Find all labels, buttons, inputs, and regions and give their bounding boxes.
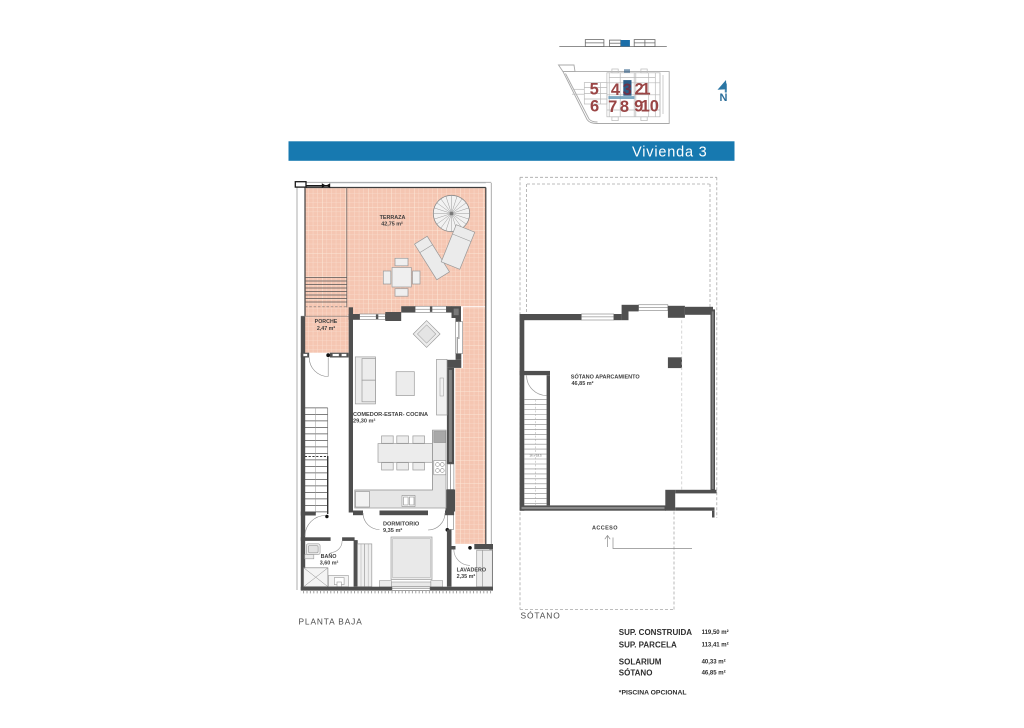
svg-text:6: 6: [590, 98, 599, 116]
svg-text:PLANTA BAJA: PLANTA BAJA: [299, 617, 363, 627]
svg-text:DORMITORIO: DORMITORIO: [383, 522, 420, 528]
svg-text:4: 4: [611, 81, 621, 99]
svg-text:2,47 m²: 2,47 m²: [317, 326, 335, 332]
svg-text:TERRAZA: TERRAZA: [380, 215, 406, 221]
svg-text:113,41 m²: 113,41 m²: [702, 642, 729, 649]
svg-text:SUP. PARCELA: SUP. PARCELA: [619, 640, 677, 649]
svg-text:5: 5: [590, 81, 599, 99]
svg-text:119,50 m²: 119,50 m²: [702, 629, 729, 636]
svg-text:PORCHE: PORCHE: [315, 319, 338, 325]
svg-text:BAÑO: BAÑO: [321, 553, 337, 560]
svg-text:3,60 m²: 3,60 m²: [320, 561, 339, 567]
svg-text:8: 8: [620, 98, 629, 116]
svg-text:SÓTANO: SÓTANO: [619, 668, 653, 677]
svg-text:SUP. CONSTRUIDA: SUP. CONSTRUIDA: [619, 628, 692, 637]
svg-text:16 x 18,5: 16 x 18,5: [529, 454, 542, 458]
svg-text:SOLARIUM: SOLARIUM: [619, 657, 662, 666]
svg-text:40,33 m²: 40,33 m²: [702, 659, 726, 666]
svg-text:29,30 m²: 29,30 m²: [353, 418, 376, 425]
svg-text:1: 1: [641, 81, 650, 99]
svg-text:10: 10: [641, 98, 659, 116]
svg-text:ACCESO: ACCESO: [592, 526, 618, 532]
svg-text:LAVADERO: LAVADERO: [457, 568, 486, 574]
svg-text:*PISCINA OPCIONAL: *PISCINA OPCIONAL: [619, 689, 687, 696]
svg-text:9,35 m²: 9,35 m²: [383, 527, 402, 534]
svg-text:2,35 m²: 2,35 m²: [457, 574, 476, 580]
svg-text:3: 3: [623, 81, 632, 99]
svg-text:7: 7: [608, 98, 617, 116]
svg-text:N: N: [720, 92, 728, 104]
svg-text:46,85 m²: 46,85 m²: [572, 380, 594, 387]
svg-text:SÓTANO: SÓTANO: [521, 611, 561, 621]
svg-text:SÓTANO APARCAMIENTO: SÓTANO APARCAMIENTO: [571, 373, 641, 381]
svg-text:Vivienda 3: Vivienda 3: [632, 144, 707, 160]
svg-text:42,75 m²: 42,75 m²: [381, 222, 403, 228]
svg-text:COMEDOR-ESTAR- COCINA: COMEDOR-ESTAR- COCINA: [353, 412, 428, 418]
svg-text:46,85 m²: 46,85 m²: [702, 670, 726, 677]
